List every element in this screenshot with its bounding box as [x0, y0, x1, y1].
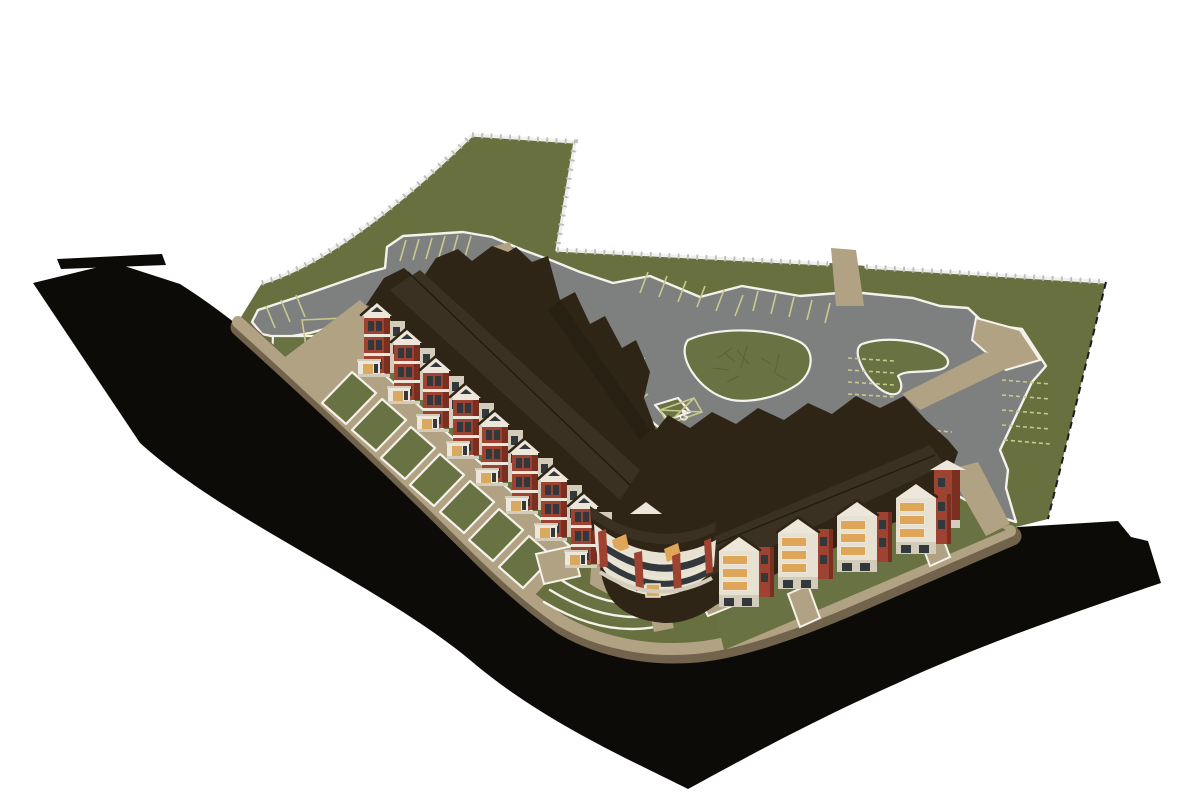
site-rendering-canvas [0, 0, 1200, 800]
architectural-site-rendering [0, 0, 1200, 800]
brick-tower-shade [952, 470, 960, 528]
window [938, 478, 945, 487]
